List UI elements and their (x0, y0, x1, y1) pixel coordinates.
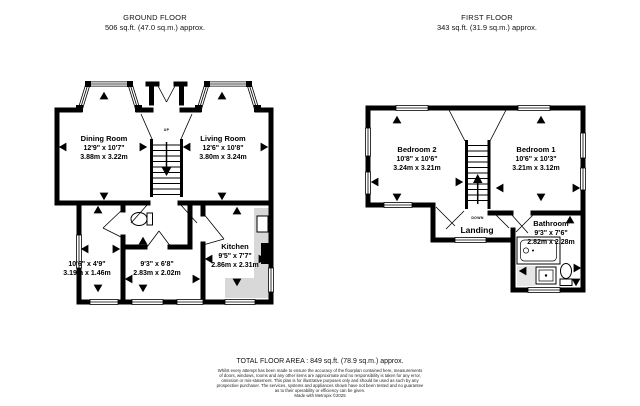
floorplan-canvas: Dining Room 12'9" x 10'7" 3.88m x 3.22m … (0, 0, 640, 406)
living-room-metric: 3.80m x 3.24m (199, 154, 246, 161)
kitchen-imperial: 9'5" x 7'7" (218, 253, 251, 260)
bathroom-imperial: 9'3" x 7'6" (534, 230, 567, 237)
stairs-up-label: UP (164, 128, 170, 132)
bedroom1-label: Bedroom 1 (516, 145, 555, 154)
first-floor-plan: Bedroom 2 10'8" x 10'6" 3.24m x 3.21m Be… (366, 106, 586, 293)
landing-label: Landing (460, 225, 493, 235)
living-room-imperial: 12'6" x 10'8" (202, 145, 243, 152)
toilet (560, 264, 572, 286)
metropix-credit: Made with Metropix ©2025 (0, 394, 640, 399)
porch (148, 84, 185, 103)
kitchen-sink (257, 216, 268, 232)
front-door (157, 84, 176, 102)
ground-floor-plan: Dining Room 12'9" x 10'7" 3.88m x 3.22m … (57, 81, 274, 305)
kitchen-metric: 2.86m x 2.31m (211, 262, 258, 269)
kitchen-label: Kitchen (221, 242, 249, 251)
total-floor-area: TOTAL FLOOR AREA : 849 sq.ft. (78.9 sq.m… (0, 358, 640, 365)
hall-imperial: 9'3" x 6'8" (140, 261, 173, 268)
stairs-down-label: DOWN (471, 216, 483, 220)
dining-room-metric: 3.88m x 3.22m (80, 154, 127, 161)
ground-stairs (141, 114, 192, 197)
bedroom2-metric: 3.24m x 3.21m (393, 165, 440, 172)
disclaimer: Whilst every attempt has been made to en… (0, 369, 640, 399)
bathroom-metric: 2.82m x 2.28m (527, 239, 574, 246)
bathroom-label: Bathroom (533, 219, 569, 228)
living-room-label: Living Room (200, 134, 246, 143)
dining-room-label: Dining Room (81, 134, 128, 143)
bedroom2-label: Bedroom 2 (397, 145, 436, 154)
bay-window-left (76, 81, 142, 112)
bedroom1-metric: 3.21m x 3.12m (512, 165, 559, 172)
side-room-metric: 3.19m x 1.46m (63, 270, 110, 277)
first-stairs (449, 110, 506, 209)
dining-room-imperial: 12'9" x 10'7" (83, 145, 124, 152)
bedroom1-imperial: 10'6" x 10'3" (515, 156, 556, 163)
side-room-imperial: 10'6" x 4'9" (68, 261, 105, 268)
bathroom-sink (536, 267, 556, 284)
bay-window-right (195, 81, 261, 112)
hall-metric: 2.83m x 2.02m (133, 270, 180, 277)
bedroom2-imperial: 10'8" x 10'6" (396, 156, 437, 163)
